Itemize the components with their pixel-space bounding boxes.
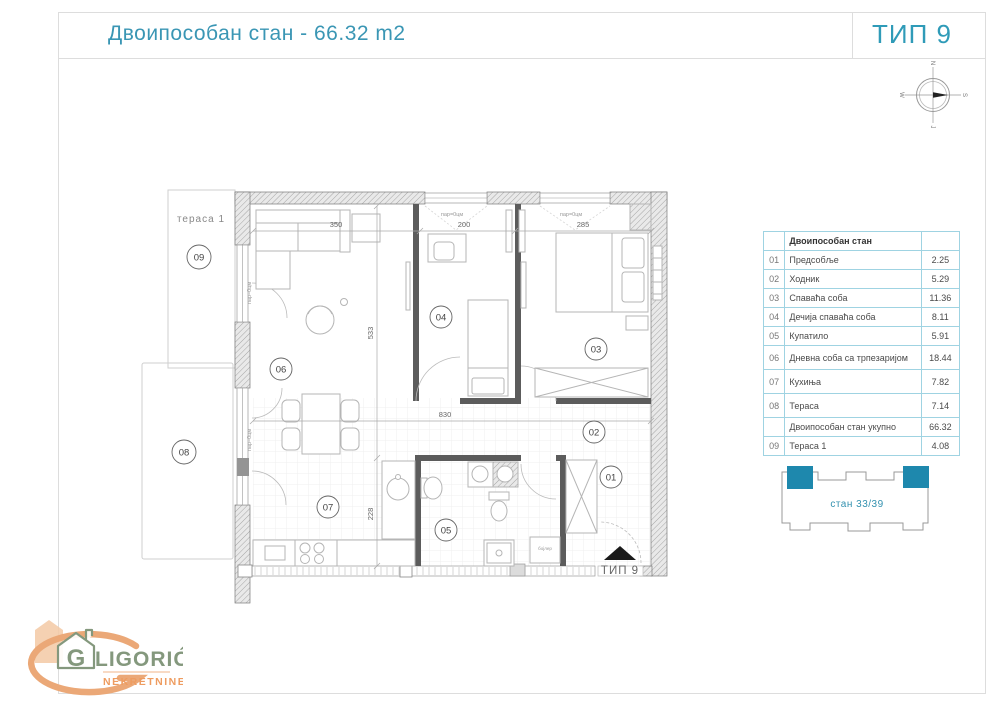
parapet-label: пар=0цм: [247, 282, 253, 305]
agency-logo: G LIGORIĆ NEKRETNINE: [8, 616, 183, 704]
svg-text:05: 05: [441, 526, 452, 537]
dim-living-height: 533: [366, 327, 375, 340]
header-divider: [58, 58, 985, 59]
room-marker-04: 04: [430, 306, 452, 328]
room-marker-01: 01: [600, 466, 622, 488]
type-label: ТИП 9: [852, 19, 972, 50]
table-row: 01Предсобље2.25: [764, 251, 960, 270]
table-row: 03Спаваћа соба11.36: [764, 289, 960, 308]
dim-kids-width: 200: [458, 220, 471, 229]
table-row: 05Купатило5.91: [764, 327, 960, 346]
entrance-type-label: ТИП 9: [601, 565, 639, 577]
parapet-label: пар=0цм: [441, 212, 464, 218]
compass-letter-s: S: [961, 93, 967, 97]
compass-icon: N S W J: [900, 58, 970, 134]
dim-kitchen-height: 228: [366, 508, 375, 521]
compass-letter-n: N: [929, 61, 935, 65]
building-caption: стан 33/39: [830, 499, 883, 510]
table-row-total: Двоипособан стан укупно66.32: [764, 418, 960, 437]
apartment-highlight-right: [903, 466, 929, 488]
parapet-label: пар=0цм: [247, 429, 253, 452]
dim-bedroom-width: 285: [577, 220, 590, 229]
page-title: Двоипособан стан - 66.32 m2: [108, 22, 406, 46]
compass-needle: [933, 92, 948, 98]
table-row: 02Ходник5.29: [764, 270, 960, 289]
svg-text:08: 08: [179, 448, 190, 459]
svg-text:03: 03: [591, 345, 602, 356]
area-table: Двоипособан стан 01Предсобље2.25 02Ходни…: [763, 231, 960, 456]
svg-text:07: 07: [323, 503, 334, 514]
area-table-title: Двоипособан стан: [785, 232, 921, 251]
svg-text:09: 09: [194, 253, 205, 264]
room-marker-03: 03: [585, 338, 607, 360]
room-marker-08: 08: [172, 440, 196, 464]
logo-initial: G: [67, 645, 86, 672]
terrace-1-area: тераса 1: [168, 190, 235, 368]
table-row: 08Тераса7.14: [764, 394, 960, 418]
table-row: 06Дневна соба са трпезаријом18.44: [764, 346, 960, 370]
wardrobe-bedroom: [535, 368, 648, 397]
room-marker-02: 02: [583, 421, 605, 443]
floor-plan-page: Двоипособан стан - 66.32 m2 ТИП 9 N S W …: [0, 0, 1000, 706]
room-marker-06: 06: [270, 358, 292, 380]
terrace-1-label: тераса 1: [177, 214, 225, 225]
building-position-diagram: стан 33/39: [765, 450, 965, 550]
svg-text:04: 04: [436, 313, 447, 324]
table-row: 04Дечија спаваћа соба8.11: [764, 308, 960, 327]
room-marker-07: 07: [317, 496, 339, 518]
boiler-label: бојлер: [538, 546, 552, 551]
area-table-header-row: Двоипособан стан: [764, 232, 960, 251]
dim-living-width: 350: [330, 220, 343, 229]
compass-letter-j: J: [929, 126, 935, 129]
room-marker-05: 05: [435, 519, 457, 541]
room-marker-09: 09: [187, 245, 211, 269]
wardrobe-entry: [566, 460, 597, 533]
dim-total-width: 830: [439, 410, 452, 419]
apartment-highlight-left: [787, 466, 813, 489]
svg-text:06: 06: [276, 365, 287, 376]
floor-plan-drawing: тераса 1: [100, 160, 690, 620]
table-row: 07Кухиња7.82: [764, 370, 960, 394]
parapet-label: пар=0цм: [560, 212, 583, 218]
logo-name: LIGORIĆ: [95, 647, 183, 671]
svg-text:01: 01: [606, 473, 617, 484]
logo-subtitle: NEKRETNINE: [103, 676, 183, 688]
svg-text:02: 02: [589, 428, 600, 439]
boiler: бојлер: [530, 537, 560, 563]
compass-letter-w: W: [900, 92, 904, 98]
